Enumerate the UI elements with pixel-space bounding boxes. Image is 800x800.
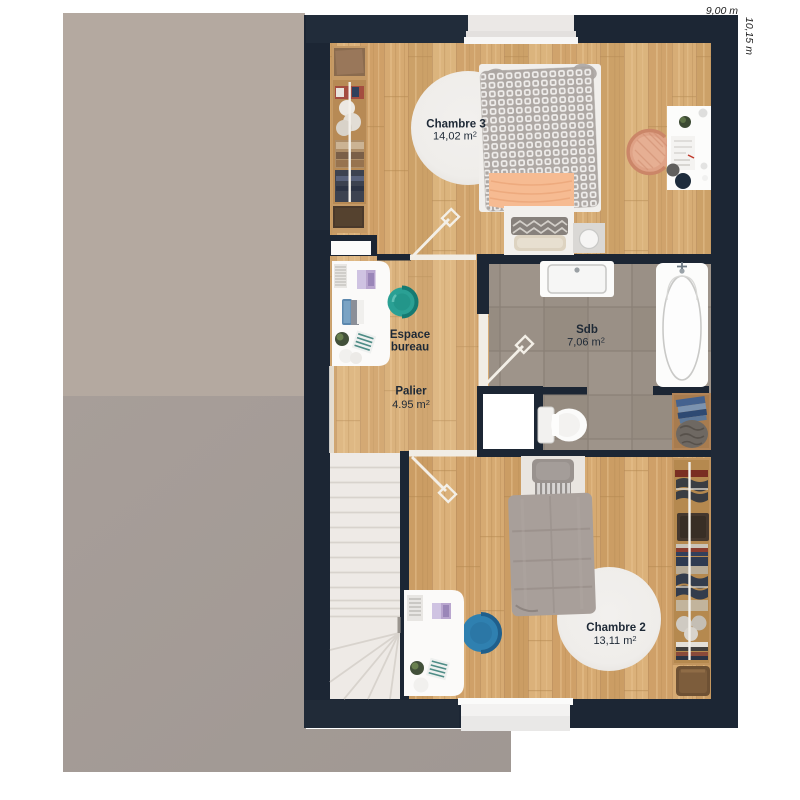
svg-text:13,11 m2: 13,11 m2 bbox=[593, 634, 636, 647]
svg-text:Sdb: Sdb bbox=[576, 324, 598, 336]
svg-text:7,06 m2: 7,06 m2 bbox=[567, 336, 605, 349]
svg-text:Chambre 2: Chambre 2 bbox=[586, 622, 645, 634]
svg-text:9,00 m: 9,00 m bbox=[706, 5, 738, 17]
svg-text:10,15 m: 10,15 m bbox=[743, 17, 755, 55]
svg-text:Espace: Espace bbox=[390, 329, 430, 341]
svg-text:4.95 m2: 4.95 m2 bbox=[392, 398, 430, 411]
svg-text:Palier: Palier bbox=[395, 386, 427, 398]
svg-text:14,02 m2: 14,02 m2 bbox=[433, 130, 477, 143]
svg-text:bureau: bureau bbox=[391, 342, 429, 354]
